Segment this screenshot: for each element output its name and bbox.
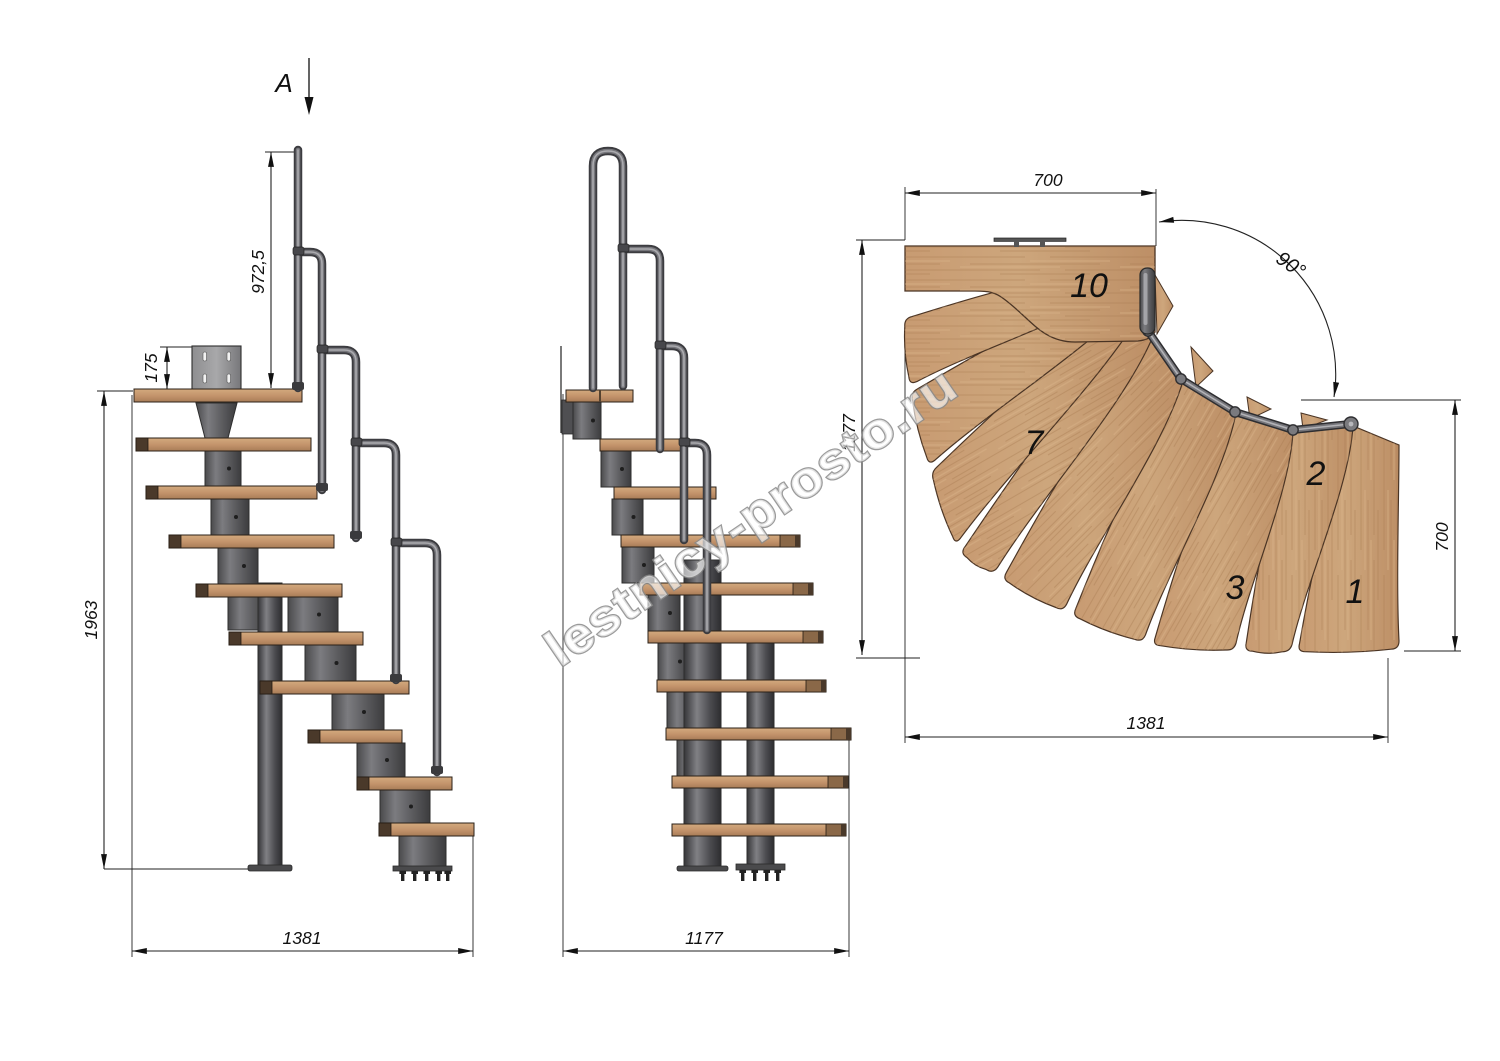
- svg-text:1381: 1381: [283, 928, 322, 948]
- svg-text:1963: 1963: [81, 600, 101, 639]
- svg-text:10: 10: [1070, 267, 1108, 305]
- svg-text:175: 175: [141, 353, 161, 382]
- svg-text:90°: 90°: [1272, 247, 1309, 282]
- svg-text:A: A: [273, 68, 292, 98]
- svg-text:972,5: 972,5: [248, 250, 268, 294]
- svg-text:1: 1: [1346, 573, 1365, 611]
- svg-text:700: 700: [1432, 522, 1452, 551]
- svg-text:3: 3: [1226, 569, 1245, 607]
- svg-text:2: 2: [1306, 455, 1326, 493]
- svg-text:7: 7: [1025, 424, 1045, 462]
- svg-text:700: 700: [1033, 170, 1062, 190]
- svg-text:1177: 1177: [685, 928, 724, 948]
- svg-text:1381: 1381: [1127, 713, 1166, 733]
